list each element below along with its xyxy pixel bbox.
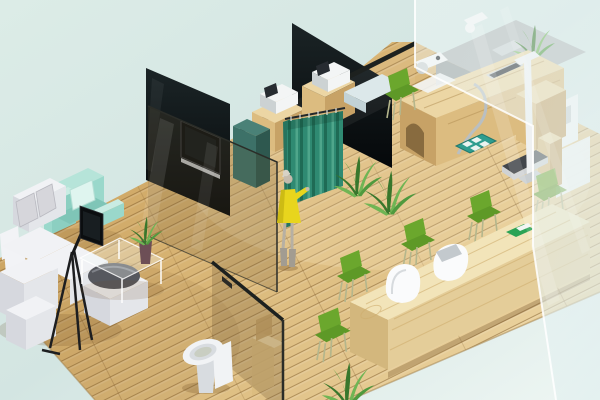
person-hand	[306, 187, 310, 191]
clinic-3d-render	[0, 0, 600, 400]
person-left-leg	[283, 223, 285, 249]
person-right-boot	[289, 249, 296, 267]
scene-canvas	[0, 0, 600, 400]
person-left-boot	[280, 248, 287, 266]
